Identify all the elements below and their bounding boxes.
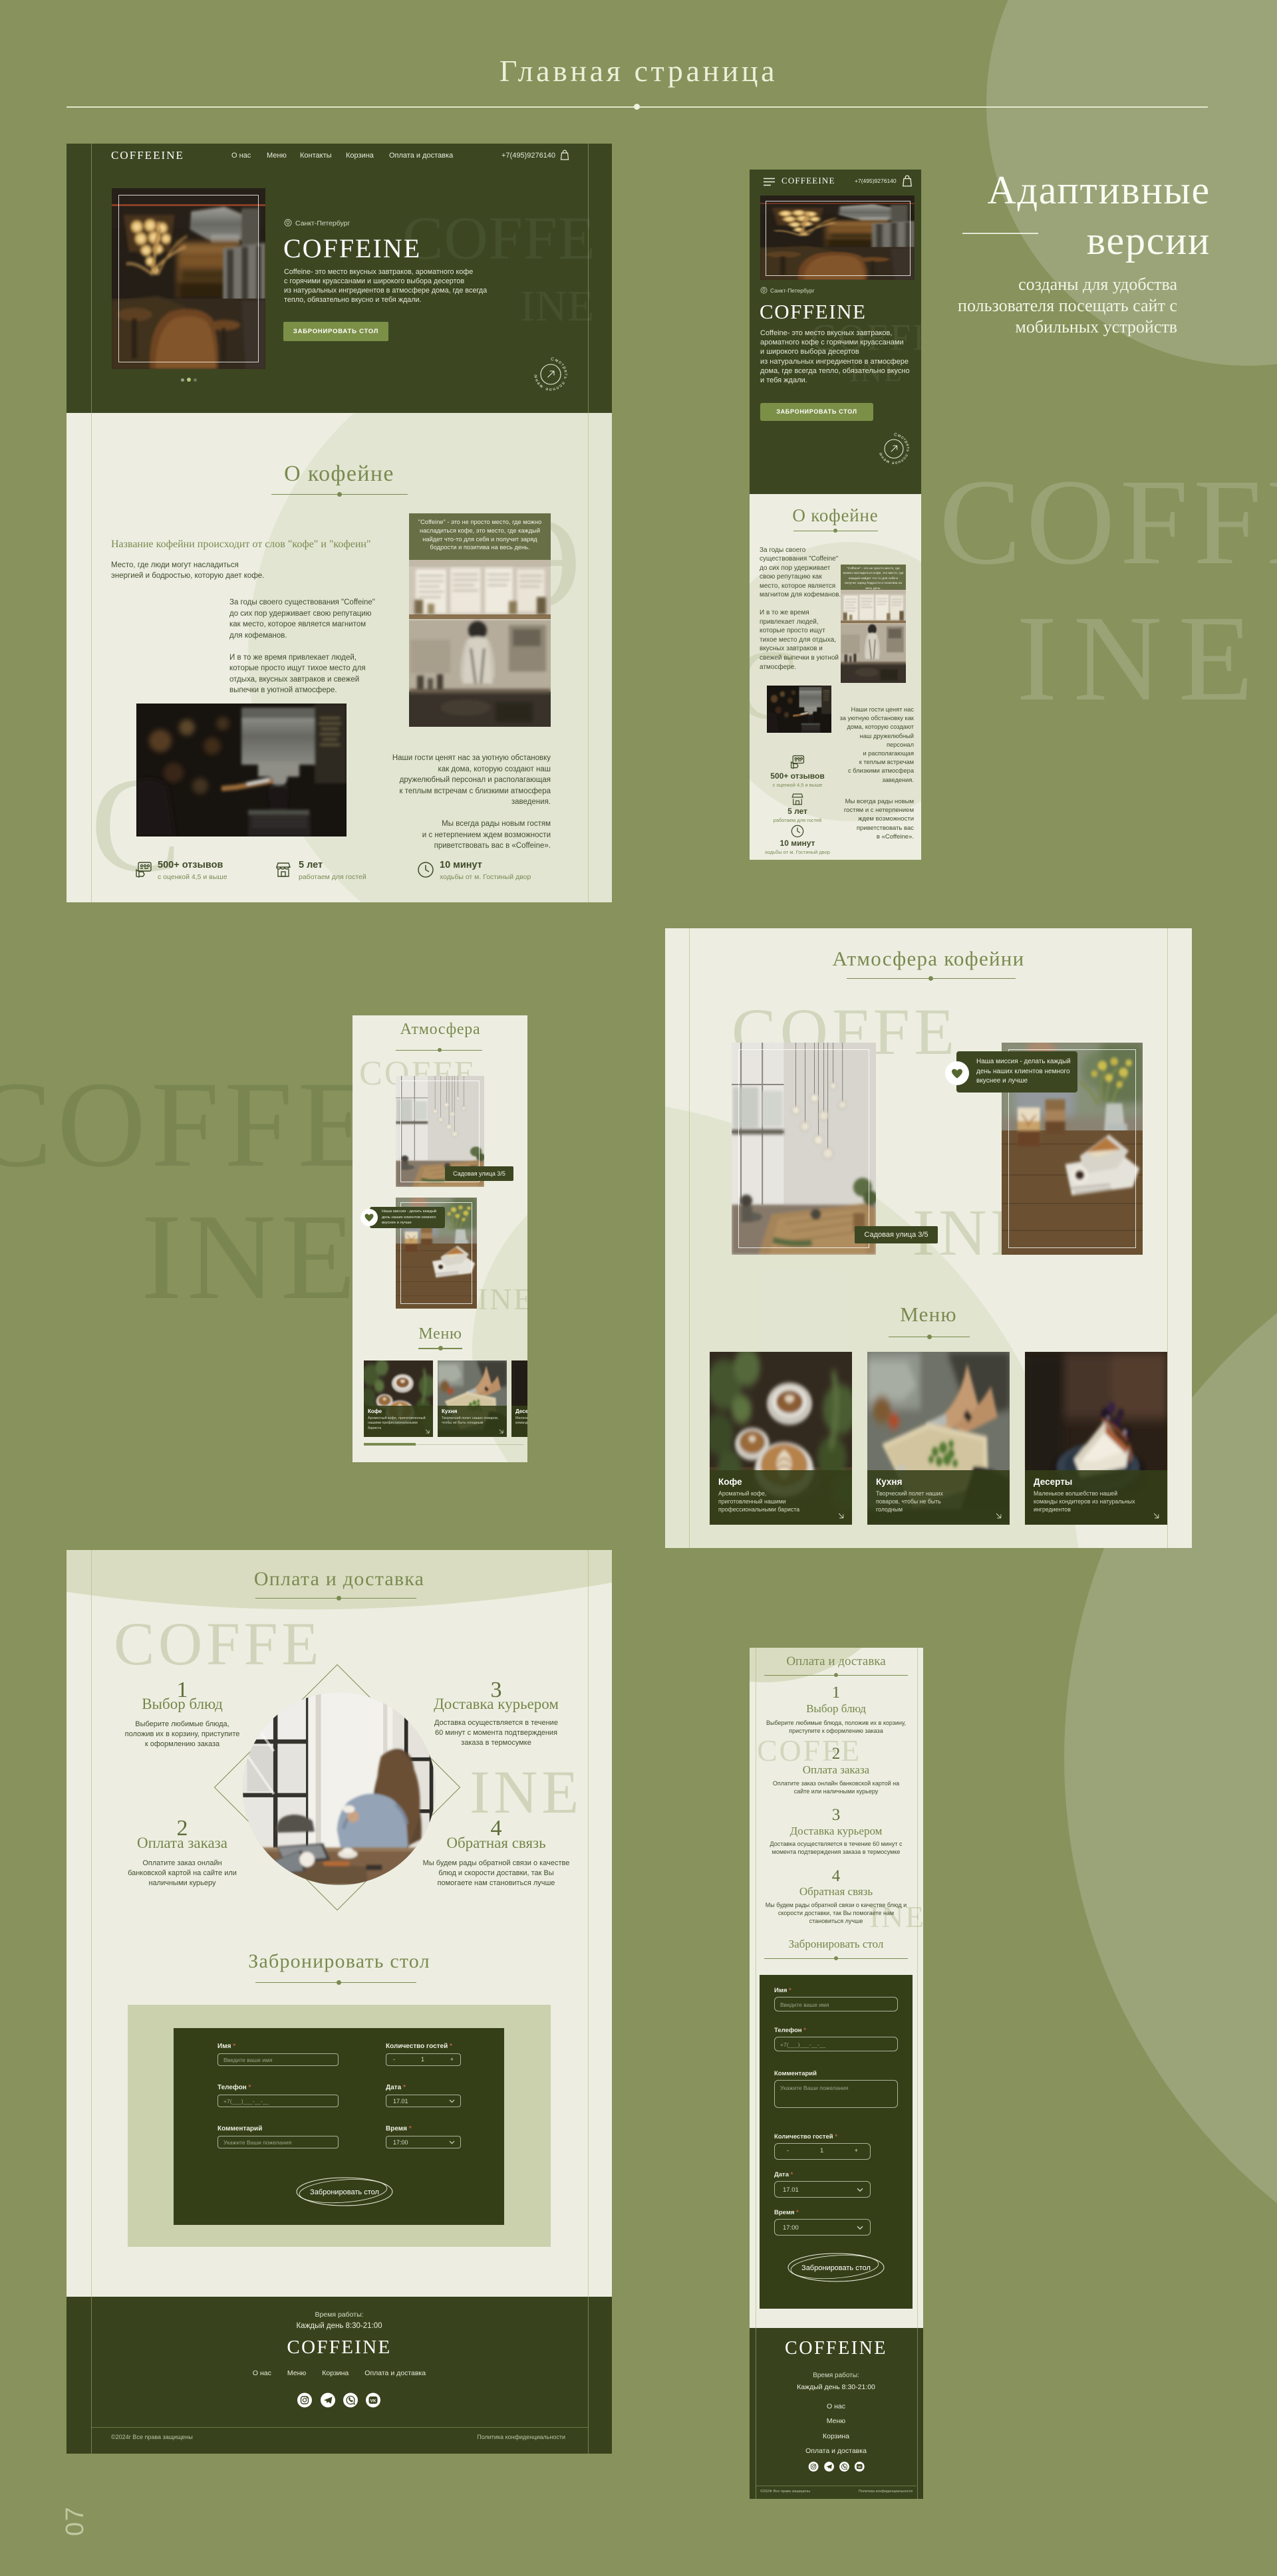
svg-text:VK: VK <box>370 2399 376 2404</box>
svg-text:Забронировать стол: Забронировать стол <box>310 2188 379 2196</box>
svg-text:VK: VK <box>857 2466 862 2469</box>
svg-text:Забронировать стол: Забронировать стол <box>801 2264 871 2272</box>
